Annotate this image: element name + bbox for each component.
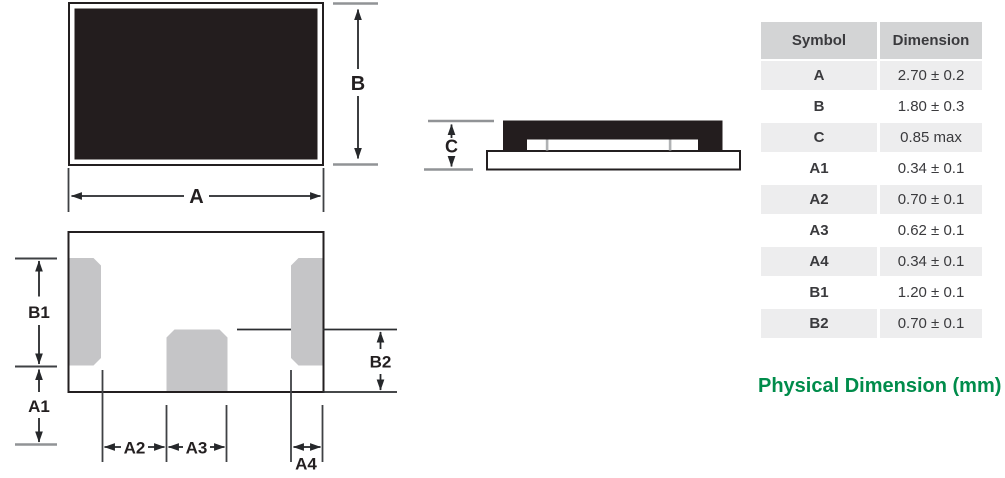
dimension-label-a: A bbox=[189, 186, 203, 208]
dimension-label-b1: B1 bbox=[28, 303, 50, 322]
dimension-label-a2: A2 bbox=[124, 439, 146, 458]
dimension-table: Symbol Dimension A 2.70 ± 0.2 B 1.80 ± 0… bbox=[761, 22, 982, 340]
pad-right bbox=[291, 258, 323, 366]
dimension-cell: 0.34 ± 0.1 bbox=[880, 154, 982, 183]
terminal-mark-left bbox=[546, 140, 549, 151]
figure-caption: Physical Dimension (mm) bbox=[758, 375, 1005, 398]
symbol-cell: A4 bbox=[761, 247, 877, 276]
physical-dimension-figure: A B C bbox=[0, 0, 1005, 478]
package-body-top bbox=[75, 9, 318, 160]
table-row: C 0.85 max bbox=[761, 123, 982, 152]
symbol-cell: A2 bbox=[761, 185, 877, 214]
table-body: A 2.70 ± 0.2 B 1.80 ± 0.3 C 0.85 max A1 … bbox=[761, 61, 982, 338]
dimension-label-b: B bbox=[351, 73, 365, 95]
dimension-label-a3: A3 bbox=[186, 439, 208, 458]
symbol-cell: A3 bbox=[761, 216, 877, 245]
table-row: A4 0.34 ± 0.1 bbox=[761, 247, 982, 276]
dimension-cell: 0.62 ± 0.1 bbox=[880, 216, 982, 245]
table-header-symbol: Symbol bbox=[761, 22, 877, 59]
dimension-label-a1: A1 bbox=[28, 397, 50, 416]
symbol-cell: C bbox=[761, 123, 877, 152]
land-pattern-diagram: B1 A1 A2 A3 A4 bbox=[15, 232, 397, 474]
substrate-base bbox=[487, 151, 740, 170]
table-row: A3 0.62 ± 0.1 bbox=[761, 216, 982, 245]
dimension-cell: 0.70 ± 0.1 bbox=[880, 185, 982, 214]
symbol-cell: B bbox=[761, 92, 877, 121]
top-view-diagram: A B bbox=[69, 3, 379, 212]
symbol-cell: B1 bbox=[761, 278, 877, 307]
dimension-label-a4: A4 bbox=[295, 455, 317, 474]
package-body-side bbox=[503, 121, 723, 152]
dimension-cell: 0.34 ± 0.1 bbox=[880, 247, 982, 276]
table-row: A2 0.70 ± 0.1 bbox=[761, 185, 982, 214]
table-row: B 1.80 ± 0.3 bbox=[761, 92, 982, 121]
dimension-label-b2: B2 bbox=[370, 353, 392, 372]
dimension-cell: 1.20 ± 0.1 bbox=[880, 278, 982, 307]
dimension-b1-a1 bbox=[15, 259, 57, 445]
side-view-diagram: C bbox=[424, 121, 740, 170]
table-row: A 2.70 ± 0.2 bbox=[761, 61, 982, 90]
dimension-cell: 2.70 ± 0.2 bbox=[880, 61, 982, 90]
table-header-dimension: Dimension bbox=[880, 22, 982, 59]
dimension-cell: 1.80 ± 0.3 bbox=[880, 92, 982, 121]
pad-center bbox=[167, 330, 228, 392]
pad-left bbox=[70, 258, 102, 366]
table-row: B2 0.70 ± 0.1 bbox=[761, 309, 982, 338]
dimension-label-c: C bbox=[445, 137, 458, 157]
table-row: A1 0.34 ± 0.1 bbox=[761, 154, 982, 183]
symbol-cell: B2 bbox=[761, 309, 877, 338]
symbol-cell: A1 bbox=[761, 154, 877, 183]
dimension-cell: 0.85 max bbox=[880, 123, 982, 152]
dimension-c bbox=[424, 121, 494, 170]
table-row: B1 1.20 ± 0.1 bbox=[761, 278, 982, 307]
terminal-mark-right bbox=[669, 140, 672, 151]
symbol-cell: A bbox=[761, 61, 877, 90]
dimension-cell: 0.70 ± 0.1 bbox=[880, 309, 982, 338]
table-header-row: Symbol Dimension bbox=[761, 22, 982, 59]
